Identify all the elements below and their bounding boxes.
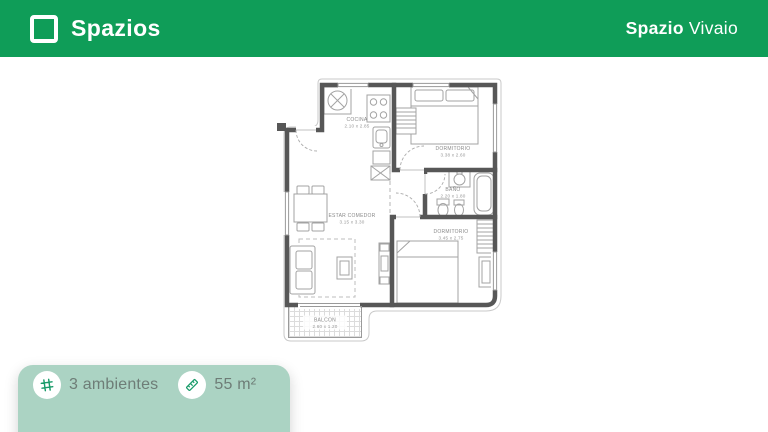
stat-ambientes: 3 ambientes <box>33 371 158 399</box>
bedroom1-shelf <box>396 108 416 134</box>
kitchen-washer <box>324 87 351 114</box>
room-name: BAÑO <box>445 186 460 193</box>
stat-ambientes-label: 3 ambientes <box>69 376 158 394</box>
bathroom-sink <box>449 171 470 187</box>
project-title-regular: Vivaio <box>689 18 738 38</box>
bedroom2-closet <box>477 220 494 253</box>
stats-badge: 3 ambientes 55 m² <box>18 365 290 432</box>
bedroom1-bed <box>411 87 478 144</box>
wall-openings <box>283 81 499 309</box>
bedroom2-bed <box>397 241 458 303</box>
room-dims: 3.15 x 3.30 <box>340 220 365 225</box>
entry-wall-stub <box>277 123 286 131</box>
room-name: COCINA <box>347 117 368 123</box>
spazios-logo-icon[interactable] <box>30 15 58 43</box>
stat-superficie-label: 55 m² <box>214 376 256 394</box>
project-title-bold: Spazio <box>626 18 684 38</box>
coffee-table <box>337 257 352 279</box>
bathroom-bidet <box>454 200 464 216</box>
room-dims: 2.10 x 2.85 <box>345 124 370 129</box>
room-label-dormitorio-2: DORMITORIO 3.45 x 2.75 <box>434 229 469 241</box>
outer-walls <box>287 85 495 305</box>
room-label-cocina: COCINA 2.10 x 2.85 <box>345 117 370 129</box>
room-dims: 3.45 x 2.75 <box>439 236 464 241</box>
kitchen-stove <box>367 95 390 122</box>
exterior-contour <box>284 79 501 341</box>
stat-superficie: 55 m² <box>178 371 256 399</box>
bathroom-tub <box>474 173 494 215</box>
room-name: DORMITORIO <box>434 229 469 235</box>
room-name: DORMITORIO <box>436 146 471 152</box>
project-title: SpazioVivaio <box>626 18 738 39</box>
kitchen-shaft <box>371 166 390 180</box>
brand-title: Spazios <box>71 15 161 42</box>
room-label-dormitorio-1: DORMITORIO 3.38 x 2.60 <box>436 146 471 158</box>
balcony-hatch <box>288 307 362 338</box>
room-dims: 2.20 x 1.80 <box>441 194 466 199</box>
bedroom2-dresser <box>479 257 493 287</box>
ruler-icon <box>178 371 206 399</box>
room-label-bano: BAÑO 2.20 x 1.80 <box>441 186 466 199</box>
page: Spazios SpazioVivaio <box>0 0 768 432</box>
room-dims: 3.38 x 2.60 <box>441 153 466 158</box>
living-sofa <box>290 246 315 294</box>
app-header: Spazios SpazioVivaio <box>0 0 768 57</box>
room-name: ESTAR COMEDOR <box>328 213 375 219</box>
interior-walls <box>392 85 495 305</box>
living-sideboard <box>379 243 390 284</box>
living-rug <box>299 239 355 297</box>
room-label-estar-comedor: ESTAR COMEDOR 3.15 x 3.30 <box>328 213 375 225</box>
bathroom-toilet <box>437 199 449 217</box>
dining-table <box>294 186 327 231</box>
kitchen-sink <box>373 127 390 148</box>
windows <box>285 83 496 306</box>
door-arcs <box>296 130 445 217</box>
kitchen-cabinet <box>373 151 390 164</box>
grid-hash-icon <box>33 371 61 399</box>
